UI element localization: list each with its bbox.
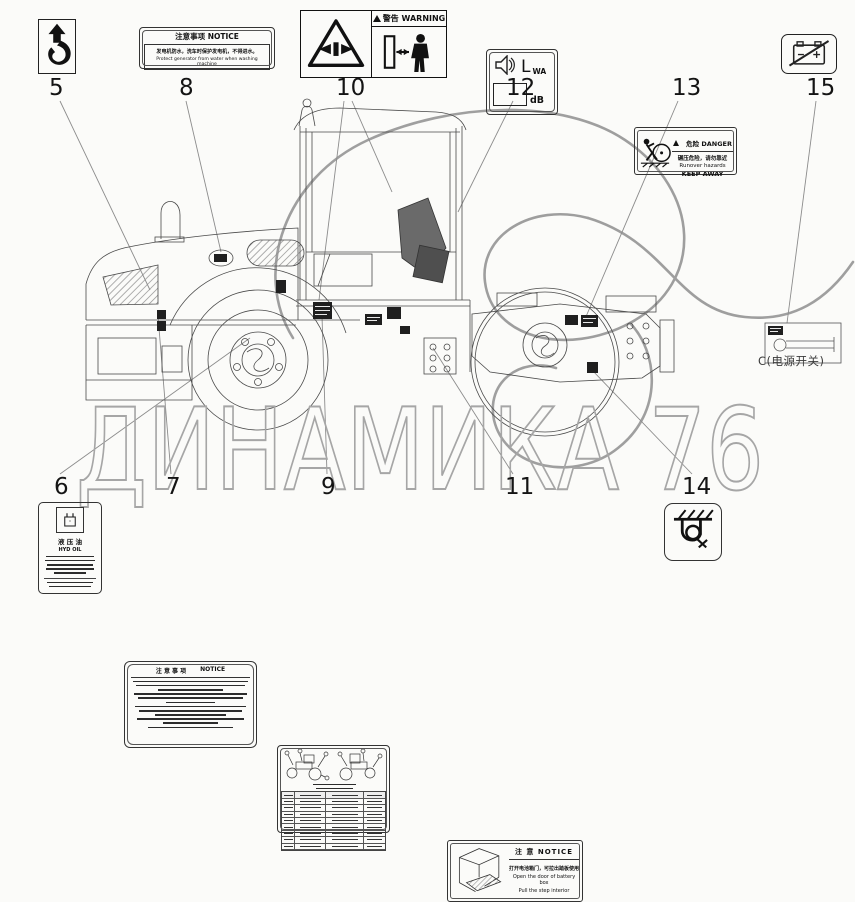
decal-runover-danger: 危险 DANGER 碾压危险，请勿靠近 Runover hazards KEEP… xyxy=(634,127,737,175)
decal-warning-crush: 警告 WARNING xyxy=(300,10,447,78)
danger-triangle-icon xyxy=(673,140,679,146)
lube-caption-text xyxy=(283,784,386,790)
oil-spec-text xyxy=(44,556,96,574)
notice-line-cn: 发电机防水，洗车时保护发电机，不得进水。 xyxy=(151,47,263,54)
decal-tie-down xyxy=(664,503,722,561)
decal-generator-notice: 注意事项 NOTICE 发电机防水，洗车时保护发电机，不得进水。 Protect… xyxy=(139,27,275,69)
warning-title: 警告 WARNING xyxy=(383,13,446,24)
decal-hydraulic-oil: 液 压 油 HYD OIL xyxy=(38,502,102,594)
callout-10: 10 xyxy=(336,77,365,100)
callout-14: 14 xyxy=(682,476,711,499)
notice7-title-en: NOTICE xyxy=(200,666,225,675)
battery-notice-en2: Pull the step interior xyxy=(509,888,579,894)
oil-can-icon xyxy=(56,507,84,533)
lifting-hook-icon xyxy=(39,57,75,76)
notice7-title-cn: 注 意 事 项 xyxy=(156,666,186,675)
decal-battery-box-notice: 注 意 NOTICE 打开电池箱门，可拉出踏板使用 Open the door … xyxy=(447,840,583,902)
watermark: ДИНАМИКА 76 xyxy=(0,0,855,597)
callout-8: 8 xyxy=(179,77,194,100)
callout-12: 12 xyxy=(506,77,535,100)
callout-5: 5 xyxy=(49,77,64,100)
danger-title: 危险 DANGER xyxy=(686,140,732,148)
notice7-body-text xyxy=(131,681,250,729)
battery-notice-title: 注 意 NOTICE xyxy=(515,847,573,857)
decal-lubrication-chart xyxy=(277,745,390,833)
parts-diagram-page: ДИНАМИКА 76 5 8 10 12 13 15 6 7 9 11 14 … xyxy=(0,0,855,597)
callout-6: 6 xyxy=(54,476,69,499)
oil-title-en: HYD OIL xyxy=(44,547,96,553)
battery-notice-cn: 打开电池箱门，可拉出踏板使用 xyxy=(509,865,579,872)
danger-line-en: Runover hazards xyxy=(672,163,733,169)
lube-mini-diagrams xyxy=(281,749,386,781)
decal-battery-disconnect xyxy=(781,34,837,74)
decal-lifting-hook xyxy=(38,19,76,74)
warning-triangle-icon xyxy=(373,15,381,22)
crush-hazard-icon xyxy=(301,11,372,77)
callout-13: 13 xyxy=(672,77,701,100)
tie-down-icon xyxy=(669,506,717,558)
callout-15: 15 xyxy=(806,77,835,100)
battery-notice-en1: Open the door of battery box xyxy=(509,874,579,886)
lube-table xyxy=(281,791,386,851)
notice-line-en: Protect generator from water when washin… xyxy=(146,57,268,67)
oil-note-text xyxy=(44,582,96,588)
danger-line-cn: 碾压危险，请勿靠近 xyxy=(672,154,733,162)
keep-distance-icon xyxy=(372,27,446,77)
decal-notice-list: 注 意 事 项 NOTICE xyxy=(124,661,257,748)
power-switch-caption: C(电源开关) xyxy=(758,353,855,369)
callout-9: 9 xyxy=(321,476,336,499)
oil-title-cn: 液 压 油 xyxy=(44,536,96,546)
notice-title: 注意事项 NOTICE xyxy=(144,31,270,42)
danger-keepaway: KEEP AWAY xyxy=(672,170,733,178)
callout-11: 11 xyxy=(505,476,534,499)
battery-disconnect-icon xyxy=(784,35,834,73)
callout-7: 7 xyxy=(166,476,181,499)
lwa-big: L xyxy=(521,59,530,76)
battery-box-drawing xyxy=(451,844,509,898)
runover-hazard-icon xyxy=(638,131,672,171)
